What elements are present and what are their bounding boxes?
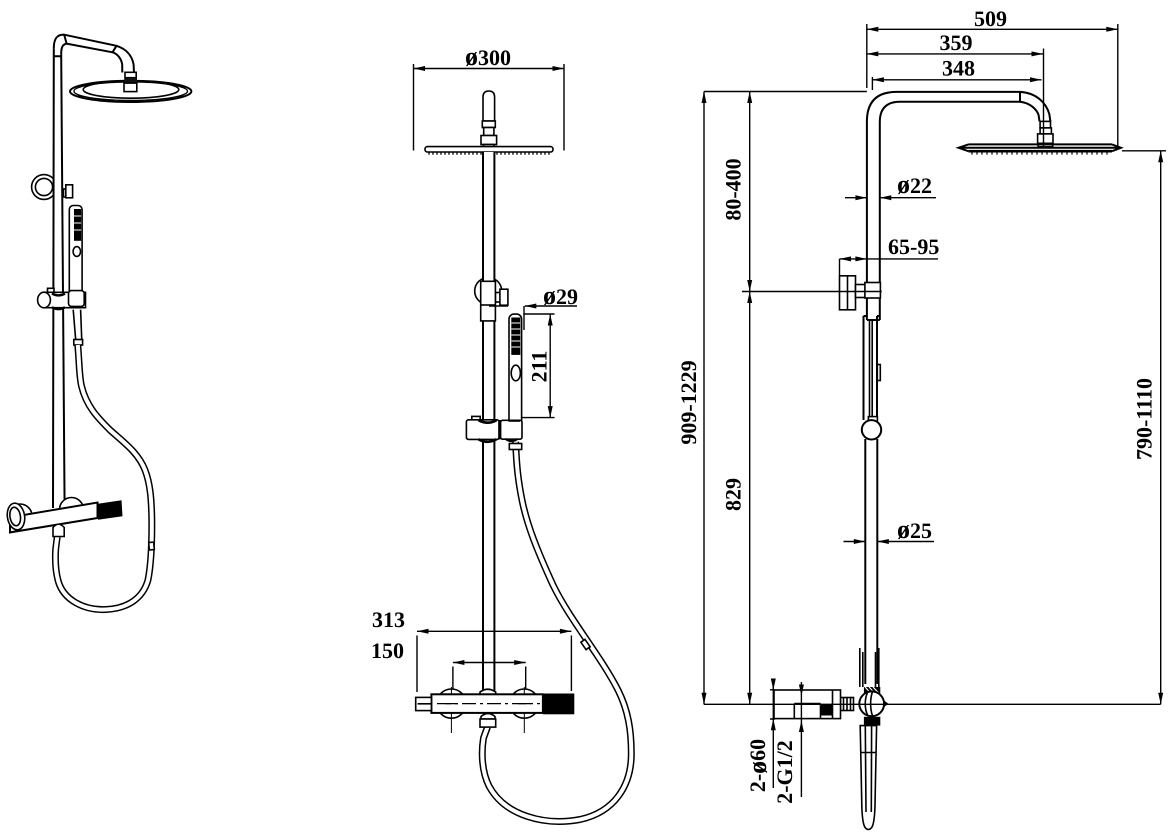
svg-text:790-1110: 790-1110 [1132, 378, 1157, 460]
svg-text:359: 359 [940, 30, 973, 55]
svg-text:2-ø60: 2-ø60 [743, 739, 772, 792]
svg-text:65-95: 65-95 [888, 234, 939, 259]
svg-text:ø300: ø300 [465, 42, 511, 71]
svg-text:ø25: ø25 [897, 515, 932, 544]
svg-text:2-G1/2: 2-G1/2 [772, 740, 797, 804]
svg-text:211: 211 [527, 351, 552, 383]
svg-text:509: 509 [974, 6, 1007, 31]
svg-text:348: 348 [942, 56, 975, 81]
svg-text:80-400: 80-400 [721, 158, 746, 220]
svg-text:909-1229: 909-1229 [676, 360, 701, 444]
svg-text:150: 150 [371, 638, 404, 663]
svg-text:829: 829 [721, 478, 746, 511]
svg-text:ø22: ø22 [897, 170, 932, 199]
svg-text:313: 313 [372, 607, 405, 632]
